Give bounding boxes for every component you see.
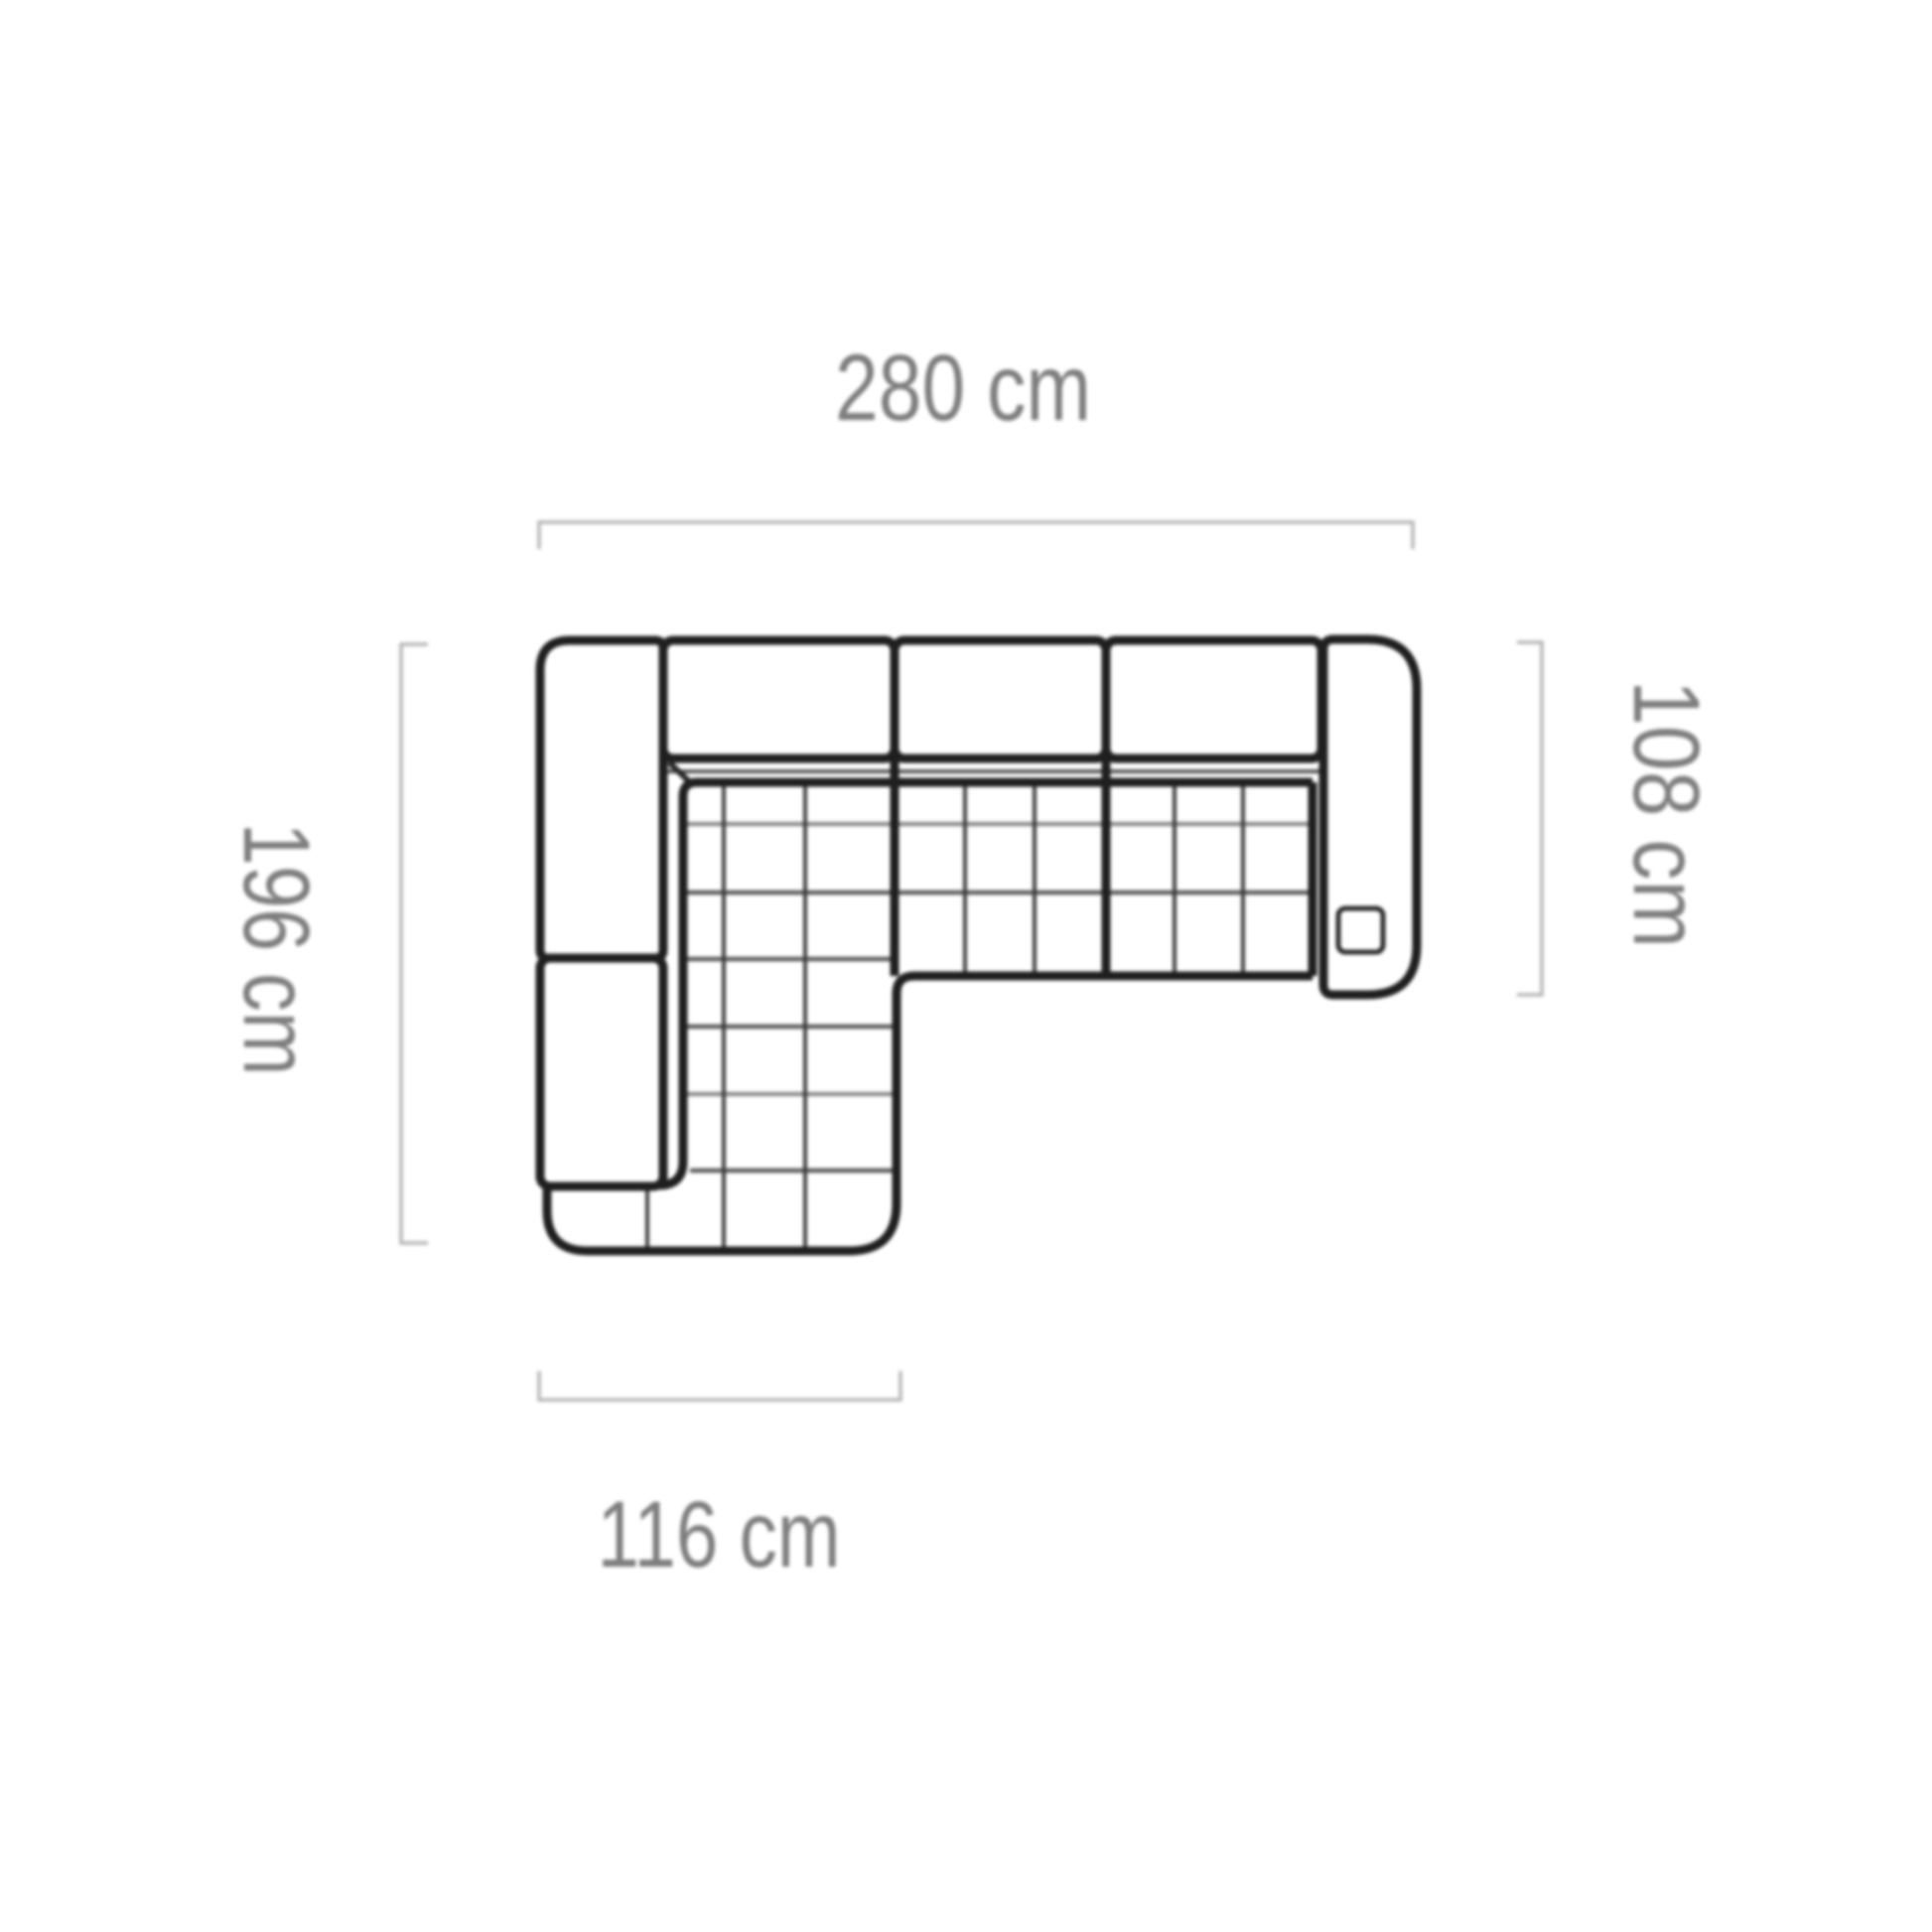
svg-text:108 cm: 108 cm xyxy=(1613,680,1719,948)
svg-text:196 cm: 196 cm xyxy=(223,823,329,1076)
svg-text:116 cm: 116 cm xyxy=(598,1482,841,1587)
svg-text:280 cm: 280 cm xyxy=(835,336,1091,441)
